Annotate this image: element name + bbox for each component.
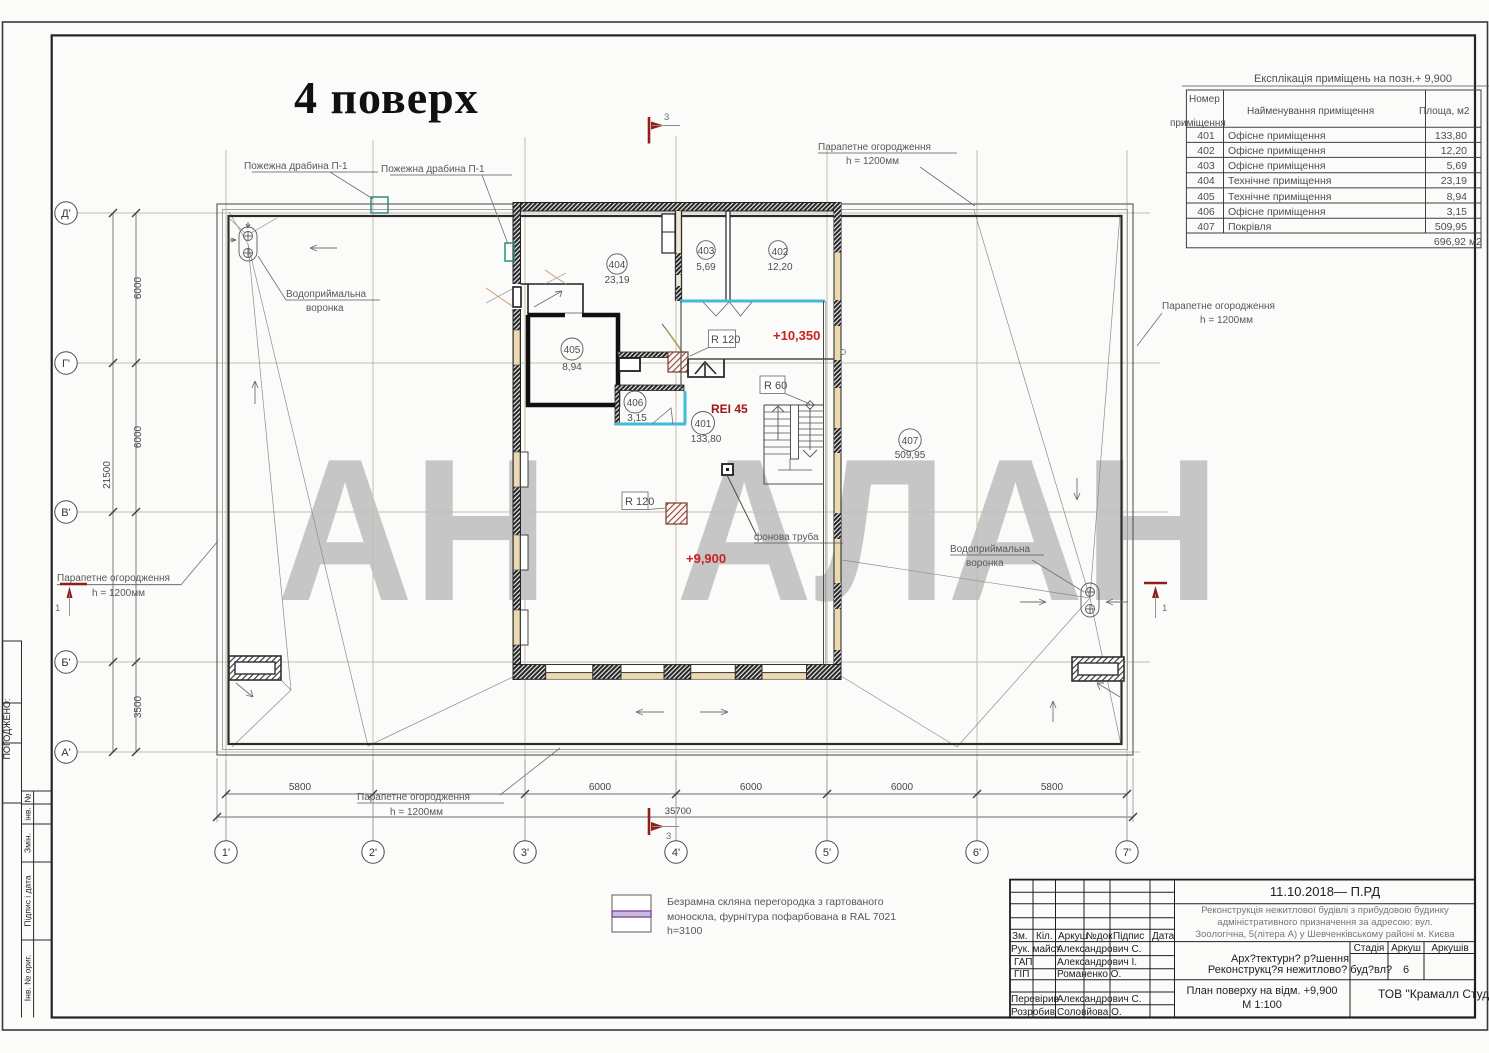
svg-text:3500: 3500 bbox=[133, 695, 144, 718]
svg-text:Кіл.: Кіл. bbox=[1036, 931, 1053, 942]
svg-text:Офісне приміщення: Офісне приміщення bbox=[1228, 206, 1326, 218]
svg-text:Аркуш: Аркуш bbox=[1391, 943, 1421, 954]
svg-text:6000: 6000 bbox=[133, 276, 144, 299]
svg-text:+9,900: +9,900 bbox=[686, 551, 726, 566]
svg-text:Парапетне огородження: Парапетне огородження bbox=[57, 573, 170, 584]
svg-text:Александрович І.: Александрович І. bbox=[1057, 957, 1137, 968]
svg-text:R 60: R 60 bbox=[764, 380, 787, 392]
svg-text:Д': Д' bbox=[61, 208, 71, 220]
svg-text:Експлікація приміщень на позн.: Експлікація приміщень на позн.+ 9,900 bbox=[1254, 73, 1452, 85]
svg-text:Зм.: Зм. bbox=[1012, 931, 1028, 942]
svg-text:Водоприймальна: Водоприймальна bbox=[950, 544, 1031, 555]
svg-text:М 1:100: М 1:100 bbox=[1242, 999, 1282, 1011]
svg-text:№док: №док bbox=[1086, 931, 1113, 942]
svg-text:моноскла, фурнітура пофарбован: моноскла, фурнітура пофарбована в RAL 70… bbox=[667, 911, 896, 923]
svg-text:23,19: 23,19 bbox=[1441, 175, 1467, 187]
svg-text:6000: 6000 bbox=[589, 782, 612, 793]
svg-text:Александрович С.: Александрович С. bbox=[1057, 944, 1141, 955]
svg-text:Дата: Дата bbox=[1152, 931, 1175, 942]
svg-text:адміністративного призначення: адміністративного призначення за адресою… bbox=[1217, 917, 1432, 928]
svg-text:Реконструкц?я нежитлово? буд: Реконструкц?я нежитлово? буд?вл? bbox=[1208, 964, 1392, 976]
svg-text:Офісне приміщення: Офісне приміщення bbox=[1228, 160, 1326, 172]
svg-text:12,20: 12,20 bbox=[767, 262, 792, 273]
svg-text:3,15: 3,15 bbox=[627, 413, 647, 424]
svg-text:h = 1200мм: h = 1200мм bbox=[92, 588, 145, 599]
svg-text:8,94: 8,94 bbox=[1447, 191, 1468, 203]
svg-text:h = 1200мм: h = 1200мм bbox=[390, 807, 443, 818]
svg-text:406: 406 bbox=[1197, 206, 1215, 218]
svg-text:Технічне приміщення: Технічне приміщення bbox=[1228, 191, 1331, 203]
svg-text:Площа, м2: Площа, м2 bbox=[1419, 106, 1470, 117]
svg-text:Покрівля: Покрівля bbox=[1228, 221, 1271, 233]
svg-text:5': 5' bbox=[823, 847, 831, 859]
svg-text:12,20: 12,20 bbox=[1441, 145, 1467, 157]
svg-text:Зоологічна, 5(літера А) у Ш: Зоологічна, 5(літера А) у Шевченківськом… bbox=[1195, 929, 1455, 940]
svg-text:Парапетне огородження: Парапетне огородження bbox=[818, 142, 931, 153]
svg-text:405: 405 bbox=[1197, 191, 1215, 203]
svg-text:А': А' bbox=[61, 747, 70, 759]
svg-text:2': 2' bbox=[369, 847, 377, 859]
svg-text:Реконструкція нежитлової буді: Реконструкція нежитлової будівлі з прибу… bbox=[1201, 905, 1449, 916]
svg-text:1': 1' bbox=[222, 847, 230, 859]
svg-text:11.10.2018— П.РД: 11.10.2018— П.РД bbox=[1270, 884, 1380, 899]
svg-text:Пожежна драбина П-1: Пожежна драбина П-1 bbox=[381, 163, 485, 175]
svg-text:Аркушів: Аркушів bbox=[1431, 943, 1468, 954]
svg-text:Рук. майст.: Рук. майст. bbox=[1011, 944, 1062, 955]
svg-text:+10,350: +10,350 bbox=[773, 328, 820, 343]
svg-text:АЛАН: АЛАН bbox=[676, 417, 1220, 644]
svg-text:Найменування приміщення: Найменування приміщення bbox=[1247, 106, 1374, 117]
svg-text:R 120: R 120 bbox=[711, 334, 740, 346]
svg-text:7': 7' bbox=[1123, 847, 1131, 859]
svg-text:6000: 6000 bbox=[891, 782, 914, 793]
svg-text:6000: 6000 bbox=[740, 782, 763, 793]
svg-text:План поверху на відм. +9,9: План поверху на відм. +9,900 bbox=[1186, 985, 1337, 997]
svg-text:Інв. № ориг.: Інв. № ориг. bbox=[23, 955, 33, 1001]
svg-text:3: 3 bbox=[666, 831, 671, 842]
svg-text:Змін.: Змін. bbox=[23, 833, 33, 853]
svg-text:АН: АН bbox=[277, 417, 549, 644]
svg-text:№: № bbox=[23, 793, 33, 802]
svg-text:401: 401 bbox=[1197, 130, 1215, 142]
svg-text:Водоприймальна: Водоприймальна bbox=[286, 289, 367, 300]
svg-text:Безрамна скляна перегородка з: Безрамна скляна перегородка з гартованог… bbox=[667, 896, 884, 908]
svg-text:Романенко О.: Романенко О. bbox=[1057, 969, 1121, 980]
svg-text:Аркуш: Аркуш bbox=[1058, 931, 1088, 942]
svg-text:509,95: 509,95 bbox=[895, 450, 926, 461]
svg-text:401: 401 bbox=[695, 419, 712, 430]
svg-text:3: 3 bbox=[664, 112, 669, 123]
svg-text:В': В' bbox=[61, 507, 70, 519]
svg-text:Парапетне огородження: Парапетне огородження bbox=[1162, 301, 1275, 312]
svg-text:3': 3' bbox=[521, 847, 529, 859]
svg-text:Підпис: Підпис bbox=[1113, 931, 1144, 942]
svg-text:4 поверх: 4 поверх bbox=[294, 72, 479, 123]
svg-text:5,69: 5,69 bbox=[696, 262, 716, 273]
svg-text:403: 403 bbox=[698, 246, 715, 257]
svg-text:воронка: воронка bbox=[306, 303, 344, 314]
svg-text:404: 404 bbox=[1197, 175, 1215, 187]
svg-text:h = 1200мм: h = 1200мм bbox=[846, 156, 899, 167]
svg-text:1: 1 bbox=[1162, 603, 1167, 614]
svg-text:5,69: 5,69 bbox=[1447, 160, 1468, 172]
svg-text:21500: 21500 bbox=[102, 461, 113, 489]
svg-text:воронка: воронка bbox=[966, 558, 1004, 569]
svg-text:405: 405 bbox=[564, 345, 581, 356]
svg-text:133,80: 133,80 bbox=[1435, 130, 1467, 142]
svg-text:ТОВ "Крамалл Студіо: ТОВ "Крамалл Студіо bbox=[1378, 987, 1489, 1001]
svg-text:фонова труба: фонова труба bbox=[754, 531, 819, 543]
svg-text:h = 1200мм: h = 1200мм bbox=[1200, 315, 1253, 326]
svg-text:Номер: Номер bbox=[1189, 94, 1220, 105]
svg-text:Технічне приміщення: Технічне приміщення bbox=[1228, 175, 1331, 187]
svg-text:407: 407 bbox=[902, 436, 919, 447]
svg-text:Розробив: Розробив bbox=[1011, 1006, 1055, 1018]
svg-text:6: 6 bbox=[1403, 964, 1409, 976]
svg-text:403: 403 bbox=[1197, 160, 1215, 172]
svg-text:Соловйова О.: Соловйова О. bbox=[1057, 1007, 1122, 1018]
svg-text:1: 1 bbox=[55, 603, 60, 614]
svg-text:Офісне приміщення: Офісне приміщення bbox=[1228, 130, 1326, 142]
svg-text:8,94: 8,94 bbox=[562, 362, 582, 373]
svg-text:404: 404 bbox=[609, 260, 626, 271]
svg-text:4': 4' bbox=[672, 847, 680, 859]
svg-text:Б': Б' bbox=[61, 657, 70, 669]
svg-text:Перевірив: Перевірив bbox=[1011, 994, 1059, 1005]
svg-text:h=3100: h=3100 bbox=[667, 925, 702, 937]
svg-text:402: 402 bbox=[772, 247, 789, 258]
svg-text:5800: 5800 bbox=[1041, 782, 1064, 793]
svg-text:Пожежна драбина П-1: Пожежна драбина П-1 bbox=[244, 160, 348, 172]
svg-text:ПОГОДЖЕНО:: ПОГОДЖЕНО: bbox=[2, 698, 12, 759]
svg-text:Підпис і дата: Підпис і дата bbox=[23, 875, 33, 926]
svg-text:R 120: R 120 bbox=[625, 496, 654, 508]
svg-text:509,95: 509,95 bbox=[1435, 221, 1467, 233]
svg-text:Офісне приміщення: Офісне приміщення bbox=[1228, 145, 1326, 157]
svg-text:приміщення: приміщення bbox=[1170, 118, 1226, 129]
svg-text:6000: 6000 bbox=[133, 425, 144, 448]
svg-text:Александрович С.: Александрович С. bbox=[1057, 994, 1141, 1005]
svg-text:Стадія: Стадія bbox=[1354, 943, 1385, 954]
svg-text:35700: 35700 bbox=[665, 806, 691, 817]
svg-text:407: 407 bbox=[1197, 221, 1215, 233]
svg-text:406: 406 bbox=[627, 398, 644, 409]
svg-text:ГІП: ГІП bbox=[1014, 969, 1029, 980]
svg-text:ГАП: ГАП bbox=[1014, 957, 1033, 968]
svg-text:133,80: 133,80 bbox=[691, 434, 722, 445]
svg-text:696,92 м2: 696,92 м2 bbox=[1434, 236, 1482, 248]
svg-text:Парапетне огородження: Парапетне огородження bbox=[357, 792, 470, 803]
svg-text:6': 6' bbox=[973, 847, 981, 859]
svg-text:5800: 5800 bbox=[289, 782, 312, 793]
svg-text:402: 402 bbox=[1197, 145, 1215, 157]
svg-text:23,19: 23,19 bbox=[604, 275, 629, 286]
svg-text:Г': Г' bbox=[62, 358, 70, 370]
svg-text:REI 45: REI 45 bbox=[711, 402, 748, 416]
svg-text:3,15: 3,15 bbox=[1447, 206, 1468, 218]
svg-text:інв.: інв. bbox=[23, 807, 33, 820]
